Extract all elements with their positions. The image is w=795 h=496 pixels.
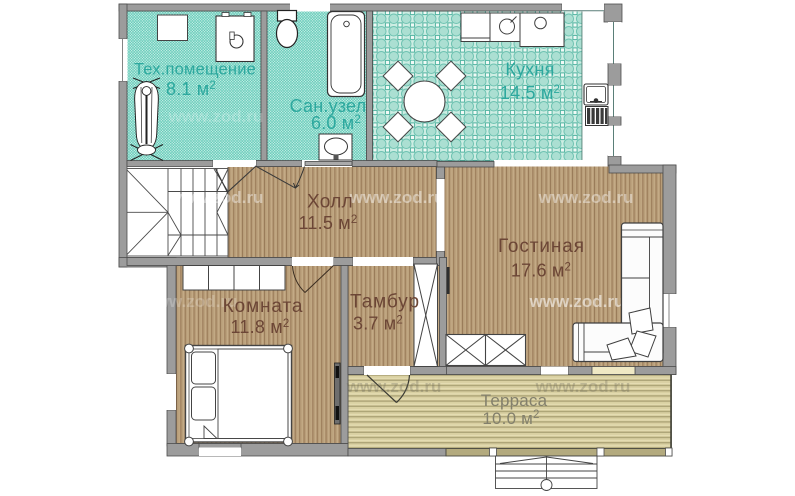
svg-text:6.0 м2: 6.0 м2 <box>311 113 361 133</box>
svg-text:11.8 м2: 11.8 м2 <box>231 317 290 337</box>
svg-text:Холл: Холл <box>307 192 353 213</box>
svg-text:www.zod.ru: www.zod.ru <box>349 188 445 207</box>
svg-text:www.zod.ru: www.zod.ru <box>168 188 264 207</box>
svg-text:10.0 м2: 10.0 м2 <box>482 409 539 428</box>
svg-text:www.zod.ru: www.zod.ru <box>529 292 625 311</box>
svg-text:14.5 м2: 14.5 м2 <box>500 83 560 103</box>
svg-text:Кухня: Кухня <box>505 60 554 80</box>
svg-text:Терраса: Терраса <box>481 391 548 410</box>
svg-text:www.zod.ru: www.zod.ru <box>538 188 634 207</box>
svg-text:8.1 м2: 8.1 м2 <box>166 79 216 99</box>
svg-text:17.6 м2: 17.6 м2 <box>511 261 571 281</box>
svg-text:Тех.помещение: Тех.помещение <box>134 61 256 79</box>
svg-text:Тамбур: Тамбур <box>350 292 420 313</box>
svg-text:Комната: Комната <box>223 296 304 317</box>
svg-text:www.zod.ru: www.zod.ru <box>168 107 264 126</box>
svg-text:www.zod.ru: www.zod.ru <box>346 377 442 396</box>
svg-text:Гостиная: Гостиная <box>498 236 585 257</box>
svg-text:11.5 м2: 11.5 м2 <box>299 213 358 233</box>
svg-text:www.zod.ru: www.zod.ru <box>535 377 631 396</box>
svg-text:3.7 м2: 3.7 м2 <box>353 314 403 334</box>
